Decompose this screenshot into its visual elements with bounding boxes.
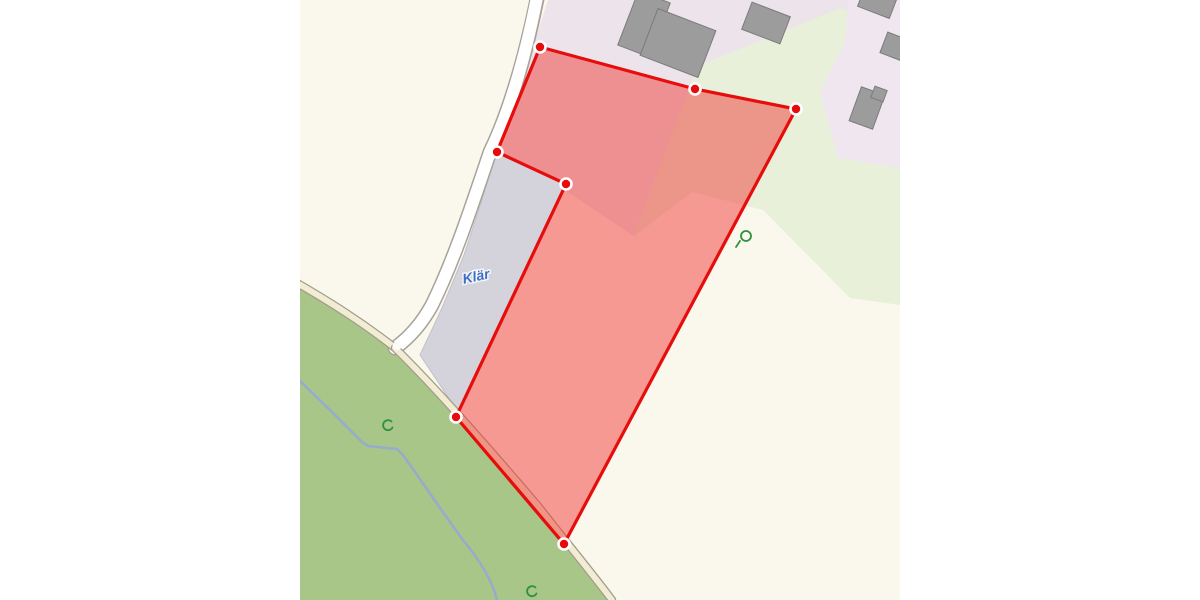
vertex-marker[interactable] <box>691 85 699 93</box>
vertex-marker[interactable] <box>562 180 570 188</box>
vertex-marker[interactable] <box>536 43 544 51</box>
road-junction <box>393 342 402 351</box>
page-background: Klär <box>0 0 1200 600</box>
vertex-marker[interactable] <box>493 148 501 156</box>
map-viewport[interactable]: Klär <box>300 0 900 600</box>
vertex-marker[interactable] <box>560 540 568 548</box>
map-svg: Klär <box>300 0 900 600</box>
vertex-marker[interactable] <box>792 105 800 113</box>
vertex-marker[interactable] <box>452 413 460 421</box>
